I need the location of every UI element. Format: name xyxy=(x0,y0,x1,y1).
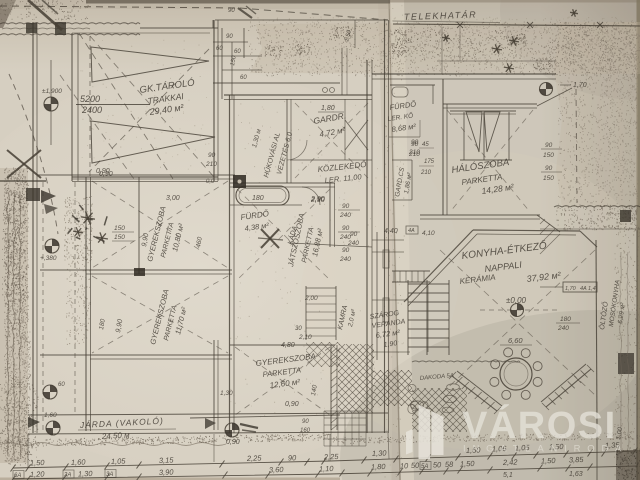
svg-text:1,50: 1,50 xyxy=(541,456,557,466)
svg-text:160: 160 xyxy=(300,428,311,434)
svg-text:180: 180 xyxy=(560,316,571,323)
svg-text:2,25: 2,25 xyxy=(323,452,340,462)
svg-text:210: 210 xyxy=(420,170,432,176)
svg-text:60: 60 xyxy=(234,49,241,55)
svg-text:1,20: 1,20 xyxy=(30,469,46,479)
svg-text:90: 90 xyxy=(545,165,553,172)
svg-text:90: 90 xyxy=(302,419,309,425)
svg-text:4A: 4A xyxy=(408,228,415,234)
svg-text:150: 150 xyxy=(543,152,554,159)
svg-text:1,50: 1,50 xyxy=(30,458,46,468)
svg-text:4,80: 4,80 xyxy=(281,342,295,349)
svg-text:90: 90 xyxy=(411,141,419,148)
svg-text:240: 240 xyxy=(347,240,359,247)
svg-text:INGATLANIRODA: INGATLANIRODA xyxy=(463,444,628,455)
svg-text:1,4: 1,4 xyxy=(588,286,596,292)
svg-text:2,10: 2,10 xyxy=(298,334,312,341)
svg-text:3,85: 3,85 xyxy=(569,455,585,465)
svg-text:6A: 6A xyxy=(14,473,21,479)
svg-text:45: 45 xyxy=(422,142,429,148)
svg-text:1,70: 1,70 xyxy=(565,286,577,292)
svg-text:1,30: 1,30 xyxy=(78,469,94,479)
svg-text:24,50 м: 24,50 м xyxy=(101,431,131,442)
svg-text:30: 30 xyxy=(295,326,302,332)
svg-text:0,90: 0,90 xyxy=(226,439,240,446)
svg-text:150: 150 xyxy=(114,225,125,232)
svg-text:150: 150 xyxy=(543,175,554,182)
svg-text:4,10: 4,10 xyxy=(422,230,435,237)
svg-text:1,63: 1,63 xyxy=(569,471,583,478)
svg-text:+,380: +,380 xyxy=(40,255,57,262)
svg-text:3,90: 3,90 xyxy=(159,467,175,477)
svg-text:90: 90 xyxy=(228,8,235,14)
svg-text:60: 60 xyxy=(240,75,247,81)
svg-text:1,30: 1,30 xyxy=(372,448,388,458)
svg-text:±0,00: ±0,00 xyxy=(506,296,527,305)
svg-text:1,30: 1,30 xyxy=(220,390,233,397)
svg-text:1,50: 1,50 xyxy=(460,459,476,469)
svg-text:210: 210 xyxy=(205,161,217,168)
svg-text:4,40: 4,40 xyxy=(384,228,398,235)
svg-text:2,90: 2,90 xyxy=(310,197,325,204)
svg-text:90: 90 xyxy=(208,152,216,159)
svg-text:90: 90 xyxy=(350,231,358,238)
svg-text:2,25: 2,25 xyxy=(246,453,263,463)
svg-text:210: 210 xyxy=(408,151,420,158)
svg-text:175: 175 xyxy=(424,159,435,165)
svg-text:240: 240 xyxy=(339,256,351,263)
svg-text:180: 180 xyxy=(252,195,264,202)
svg-text:6,60: 6,60 xyxy=(508,336,523,345)
svg-text:1,60: 1,60 xyxy=(71,457,87,467)
svg-text:90: 90 xyxy=(545,142,553,149)
svg-text:90: 90 xyxy=(342,203,350,210)
svg-text:1,10: 1,10 xyxy=(319,464,335,474)
svg-text:1,70: 1,70 xyxy=(573,82,587,89)
svg-text:0,0: 0,0 xyxy=(206,179,215,185)
svg-text:58: 58 xyxy=(445,460,454,469)
svg-text:50: 50 xyxy=(411,461,420,470)
svg-text:3A: 3A xyxy=(106,472,113,478)
svg-text:3,15: 3,15 xyxy=(159,455,175,465)
svg-text:VÁROSI: VÁROSI xyxy=(462,403,617,447)
svg-text:1,80: 1,80 xyxy=(321,105,335,112)
svg-text:10: 10 xyxy=(400,461,409,470)
svg-text:60: 60 xyxy=(216,46,223,52)
svg-text:90: 90 xyxy=(288,453,297,462)
svg-text:150: 150 xyxy=(114,234,125,241)
svg-text:3,60: 3,60 xyxy=(269,465,285,475)
svg-text:5A: 5A xyxy=(421,464,428,470)
svg-text:90: 90 xyxy=(342,225,350,232)
svg-text:5200: 5200 xyxy=(80,94,100,104)
svg-text:5,1: 5,1 xyxy=(503,472,513,479)
svg-text:±1,900: ±1,900 xyxy=(42,88,62,95)
svg-text:60: 60 xyxy=(58,382,65,388)
svg-text:2400: 2400 xyxy=(81,105,102,115)
svg-text:2,42: 2,42 xyxy=(502,457,519,467)
svg-text:90: 90 xyxy=(226,34,233,40)
svg-text:4A: 4A xyxy=(580,286,587,292)
svg-text:3,00: 3,00 xyxy=(166,195,180,202)
svg-text:50: 50 xyxy=(433,460,442,469)
svg-text:1,05: 1,05 xyxy=(111,456,127,466)
svg-text:240: 240 xyxy=(557,325,569,332)
svg-text:1,60: 1,60 xyxy=(44,412,57,419)
svg-text:240: 240 xyxy=(339,212,351,219)
svg-text:1,80: 1,80 xyxy=(371,462,387,472)
svg-text:0,90: 0,90 xyxy=(96,168,110,175)
svg-text:3A: 3A xyxy=(64,473,71,479)
svg-text:0,90: 0,90 xyxy=(285,401,299,408)
svg-text:90: 90 xyxy=(342,247,350,254)
